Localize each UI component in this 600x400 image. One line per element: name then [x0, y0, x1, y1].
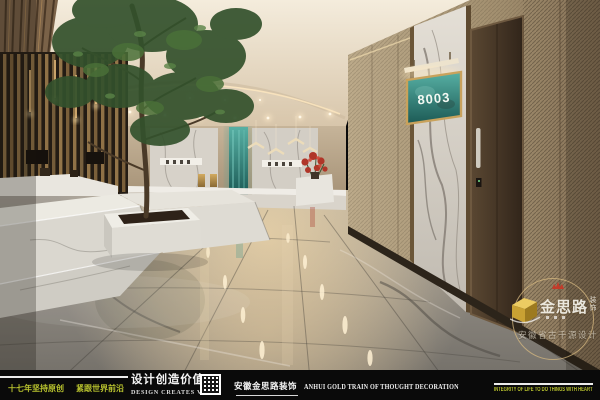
room-number-text: 8003: [417, 90, 451, 108]
watermark-dots: [546, 316, 565, 319]
company-name-cn: 安徽金思路装饰: [234, 380, 297, 392]
company-name-en: ANHUI GOLD TRAIN OF THOUGHT DECORATION: [304, 383, 459, 391]
footer-company-underline: [236, 395, 298, 396]
door-handle-icon: [476, 128, 481, 168]
footer-left-slogan: 十七年坚持原创紧跟世界前沿: [8, 383, 124, 394]
red-crown-icon: [552, 282, 564, 290]
footer-company: 安徽金思路装饰 ANHUI GOLD TRAIN OF THOUGHT DECO…: [234, 380, 480, 392]
watermark-brand: 金思路: [540, 296, 588, 317]
slogan-world: 紧跟世界前沿: [76, 384, 124, 393]
company-watermark: 金思路 装饰 安徽省古千源设计: [500, 276, 600, 366]
room-number-sign: 8003: [407, 72, 461, 124]
footer-right-motto: INTEGRITY OF LIFE TO DO THINGS WITH HEAR…: [494, 387, 593, 393]
footer-right-divider: [494, 383, 593, 385]
display-niche: [226, 126, 250, 196]
gold-blocks-logo-icon: [510, 292, 540, 326]
qr-code-icon: [200, 374, 221, 395]
promo-image: 8003: [0, 0, 600, 400]
watermark-brand-suffix: 装饰: [588, 296, 596, 312]
footer-left-divider: [0, 376, 128, 378]
vignette-left: [0, 0, 36, 372]
footer-bar: 十七年坚持原创紧跟世界前沿 设计创造价值 DESIGN CREATES VALU…: [0, 370, 600, 400]
door-card-reader-icon: [476, 178, 482, 187]
watermark-subtitle: 安徽省古千源设计: [518, 329, 598, 341]
slogan-years: 十七年坚持原创: [8, 384, 64, 393]
